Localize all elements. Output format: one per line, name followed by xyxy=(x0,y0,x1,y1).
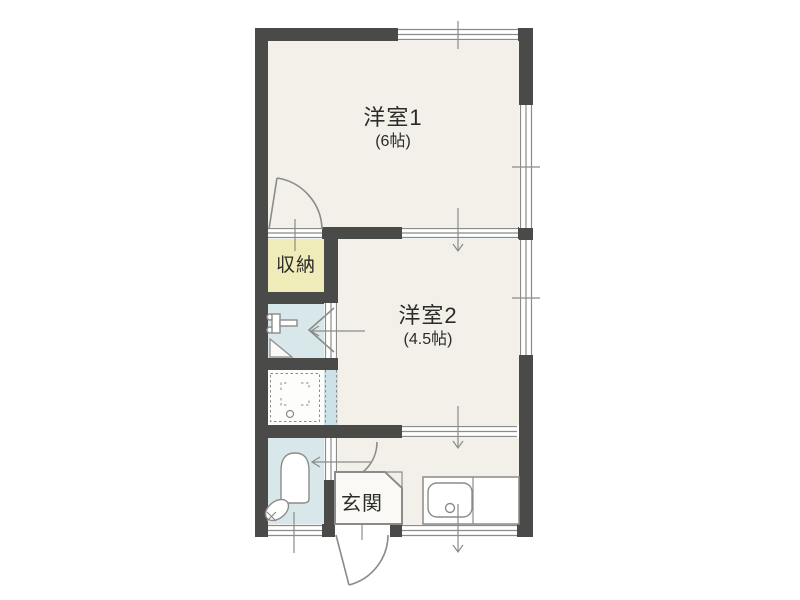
bath-pattern xyxy=(271,374,320,422)
room-size: (6帖) xyxy=(303,133,483,151)
storage-door xyxy=(268,178,322,251)
kitchen-sink-icon xyxy=(423,477,519,524)
room-name: 玄関 xyxy=(333,493,391,515)
window-right-west1 xyxy=(512,105,540,228)
window-top xyxy=(398,21,518,49)
room-label-western2: 洋室2 (4.5帖) xyxy=(338,304,518,349)
sliding-door-west1-west2 xyxy=(402,208,518,251)
bath-door xyxy=(324,370,338,425)
window-bottom-kitchen xyxy=(402,524,517,537)
room-label-storage: 収納 xyxy=(268,256,324,277)
floorplan-canvas: 洋室1 (6帖) 洋室2 (4.5帖) 収納 玄関 xyxy=(0,0,800,600)
room-name: 洋室1 xyxy=(303,106,483,130)
room-label-western1: 洋室1 (6帖) xyxy=(303,106,483,151)
room-label-entrance: 玄関 xyxy=(333,493,391,515)
room-size: (4.5帖) xyxy=(338,331,518,349)
sliding-door-west2-hall xyxy=(402,406,517,448)
washroom-faucet-icon xyxy=(267,314,297,357)
room-name: 洋室2 xyxy=(338,304,518,328)
toilet-icon xyxy=(281,453,309,503)
room-name: 収納 xyxy=(268,256,324,277)
